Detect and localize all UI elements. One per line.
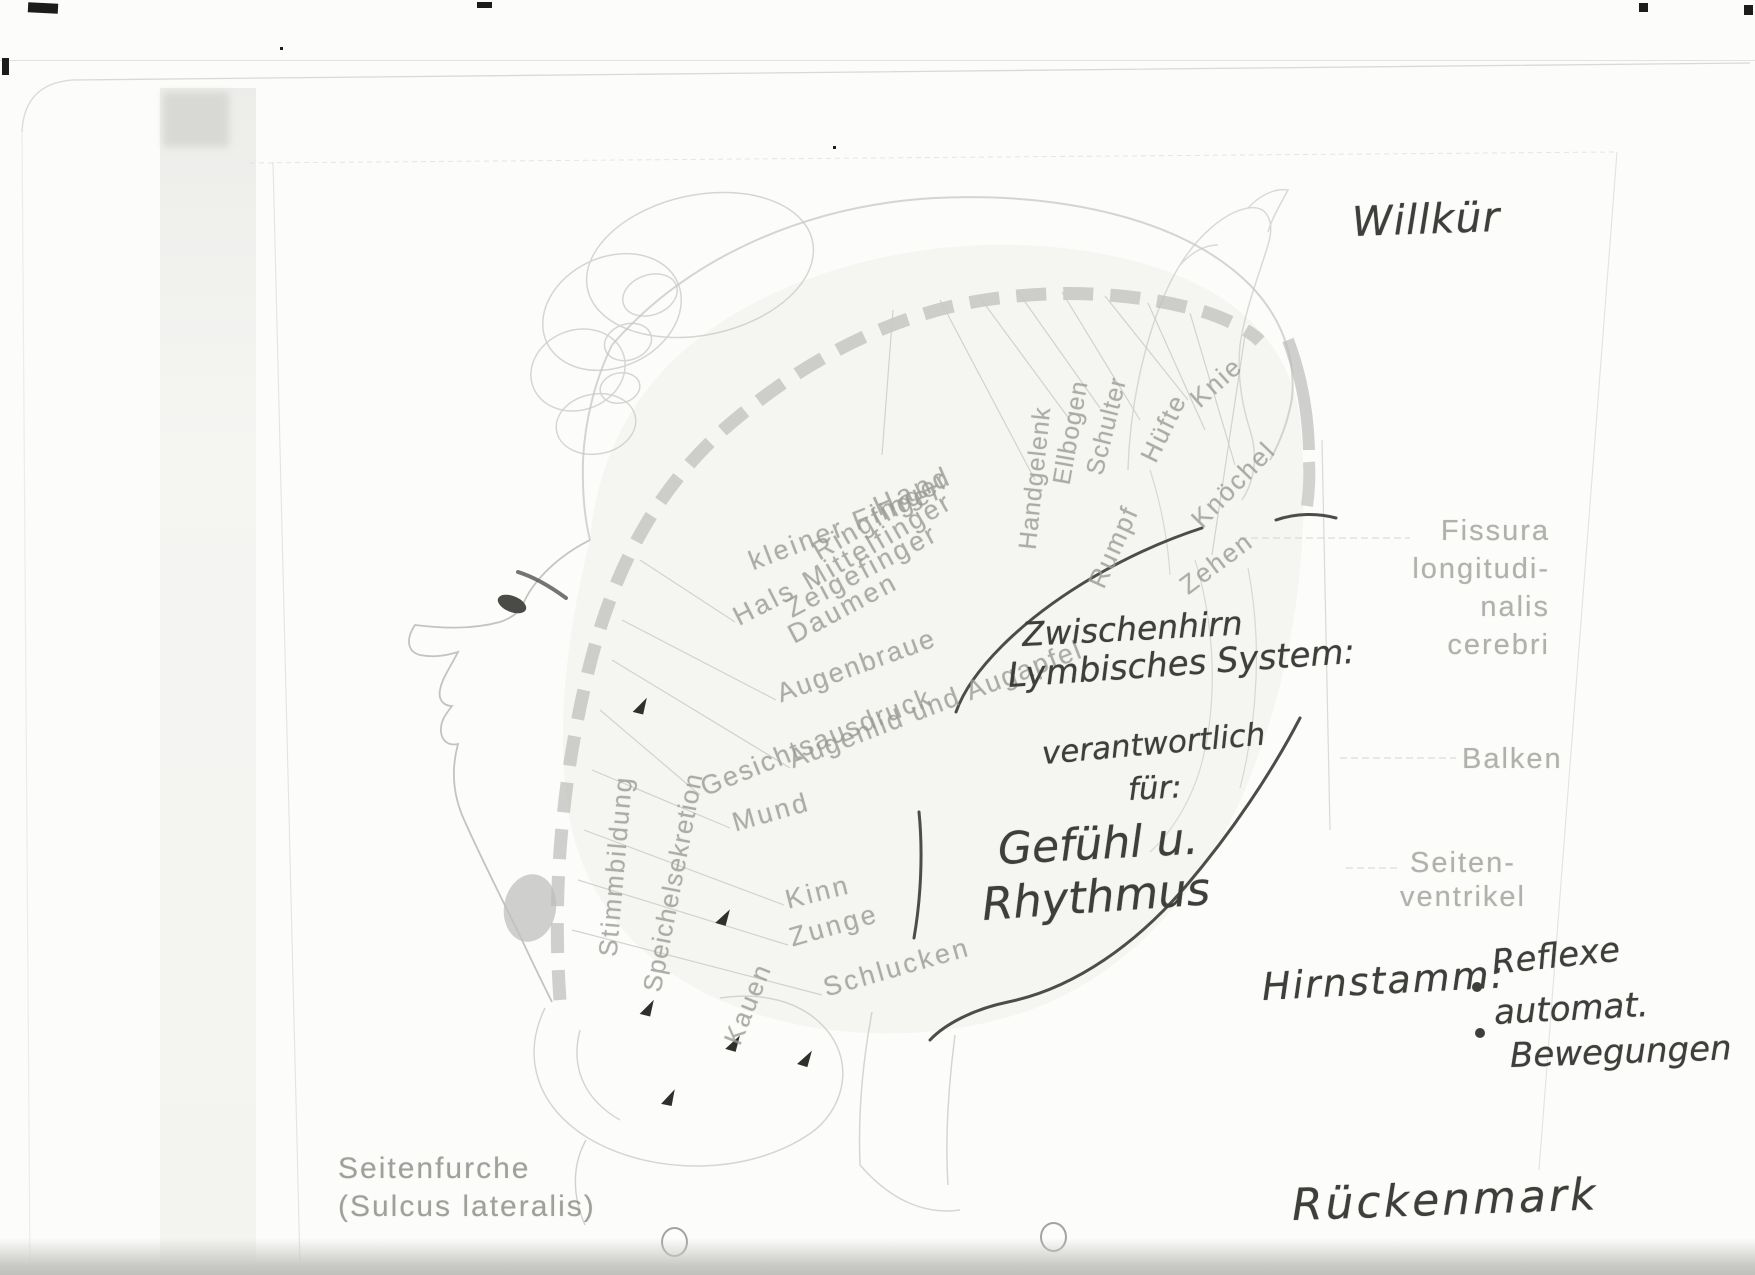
fissura-line: nalis <box>1380 588 1550 626</box>
handwriting-fuer: für: <box>1127 769 1183 808</box>
fissura-line: Fissura <box>1380 512 1550 550</box>
scan-bottom-shadow <box>0 1238 1755 1275</box>
inner-border-top <box>250 152 1614 163</box>
page-left-edge <box>22 132 30 1268</box>
seitenventrikel-line: ventrikel <box>1398 880 1528 914</box>
handwriting-rueckenmark: Rückenmark <box>1291 1169 1599 1231</box>
label-fissura-longitudinalis-cerebri: Fissura longitudi- nalis cerebri <box>1380 512 1550 664</box>
bullet-icon <box>1472 982 1482 992</box>
handwriting-automat: automat. <box>1493 985 1650 1033</box>
face-eye <box>495 591 529 617</box>
fissura-line: longitudi- <box>1380 550 1550 588</box>
handwriting-willkuer: Willkür <box>1351 193 1501 246</box>
seitenfurche-line: Seitenfurche <box>338 1150 596 1188</box>
seitenventrikel-line: Seiten- <box>1398 846 1528 880</box>
scanned-brain-diagram-page: Handkleiner FingerRingfingerMittelfinger… <box>0 0 1755 1275</box>
fissura-line: cerebri <box>1380 626 1550 664</box>
bullet-icon <box>1475 1028 1485 1038</box>
label-seitenfurche: Seitenfurche (Sulcus lateralis) <box>338 1150 596 1226</box>
page-corner-edge <box>22 63 1750 132</box>
motor-strip-right-arc-lower <box>1307 462 1309 506</box>
inner-border-left <box>273 162 300 1265</box>
label-balken: Balken <box>1462 740 1563 778</box>
label-seitenventrikel: Seiten- ventrikel <box>1398 846 1528 914</box>
seitenfurche-line: (Sulcus lateralis) <box>338 1188 596 1226</box>
handwriting-bewegungen: Bewegungen <box>1509 1028 1732 1076</box>
